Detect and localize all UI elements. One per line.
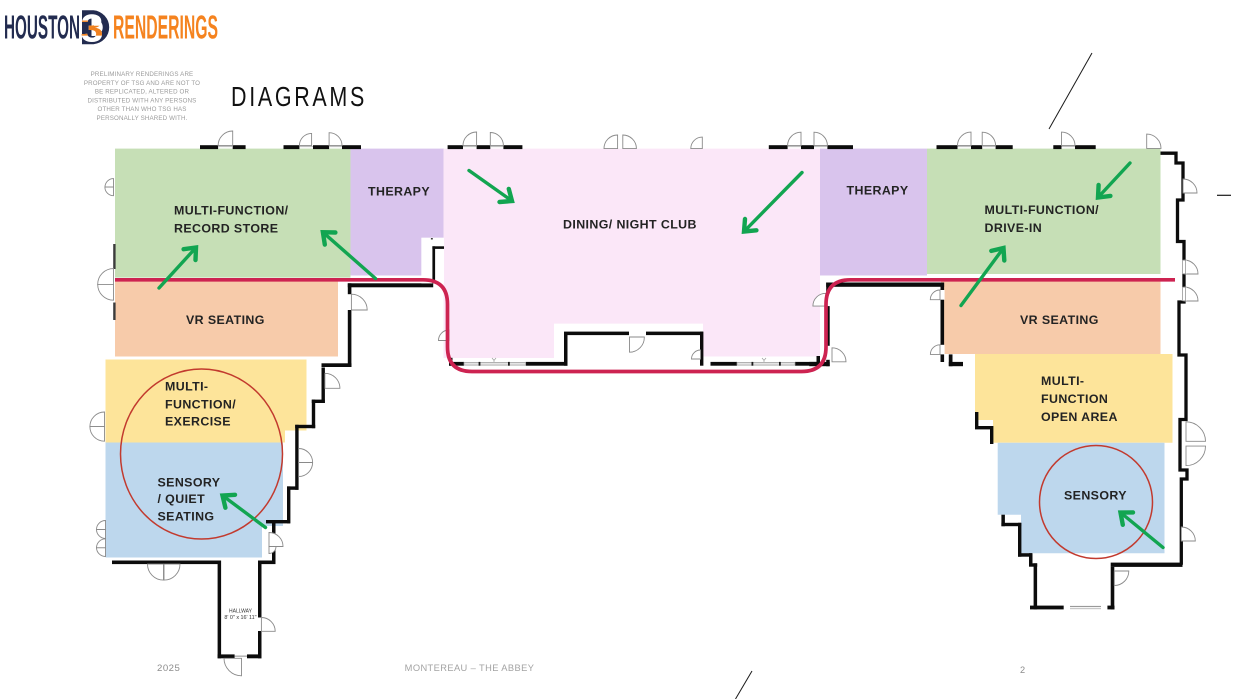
svg-text:VR SEATING: VR SEATING — [186, 313, 265, 327]
svg-text:HALLWAY: HALLWAY — [229, 609, 253, 615]
svg-text:OTHER THAN WHO TSG HAS: OTHER THAN WHO TSG HAS — [97, 106, 186, 113]
svg-text:FUNCTION: FUNCTION — [1041, 392, 1108, 406]
svg-text:RENDERINGS: RENDERINGS — [113, 9, 218, 46]
svg-text:HOUSTON: HOUSTON — [4, 9, 80, 46]
svg-text:THERAPY: THERAPY — [847, 184, 909, 198]
svg-text:8' 0" x 16' 11": 8' 0" x 16' 11" — [224, 615, 256, 621]
svg-text:PRELIMINARY RENDERINGS ARE: PRELIMINARY RENDERINGS ARE — [91, 71, 194, 78]
svg-text:SENSORY: SENSORY — [158, 476, 221, 490]
svg-text:MULTI-FUNCTION/: MULTI-FUNCTION/ — [174, 204, 289, 218]
svg-text:MONTEREAU – THE ABBEY: MONTEREAU – THE ABBEY — [405, 663, 535, 673]
svg-text:DINING/ NIGHT CLUB: DINING/ NIGHT CLUB — [563, 218, 697, 232]
svg-text:SEATING: SEATING — [158, 510, 215, 524]
svg-text:/ QUIET: / QUIET — [158, 492, 206, 506]
svg-text:THERAPY: THERAPY — [368, 185, 430, 199]
svg-text:DISTRIBUTED WITH ANY PERSONS: DISTRIBUTED WITH ANY PERSONS — [88, 97, 197, 104]
svg-text:EXERCISE: EXERCISE — [165, 415, 231, 429]
svg-text:MULTI-: MULTI- — [1041, 374, 1084, 388]
svg-text:DRIVE-IN: DRIVE-IN — [985, 221, 1043, 235]
svg-text:MULTI-FUNCTION/: MULTI-FUNCTION/ — [985, 203, 1100, 217]
svg-text:VR SEATING: VR SEATING — [1020, 313, 1099, 327]
svg-text:BE REPLICATED, ALTERED OR: BE REPLICATED, ALTERED OR — [95, 89, 190, 96]
svg-text:PROPERTY OF TSG AND ARE NOT TO: PROPERTY OF TSG AND ARE NOT TO — [84, 80, 200, 87]
svg-text:RECORD STORE: RECORD STORE — [174, 222, 278, 236]
svg-text:PERSONALLY SHARED WITH.: PERSONALLY SHARED WITH. — [97, 115, 188, 122]
svg-text:OPEN AREA: OPEN AREA — [1041, 410, 1118, 424]
svg-text:2025: 2025 — [157, 663, 180, 674]
svg-text:2: 2 — [1020, 665, 1025, 675]
svg-text:SENSORY: SENSORY — [1064, 489, 1127, 503]
svg-text:DIAGRAMS: DIAGRAMS — [231, 81, 367, 112]
svg-text:MULTI-: MULTI- — [165, 380, 208, 394]
svg-text:FUNCTION/: FUNCTION/ — [165, 398, 236, 412]
